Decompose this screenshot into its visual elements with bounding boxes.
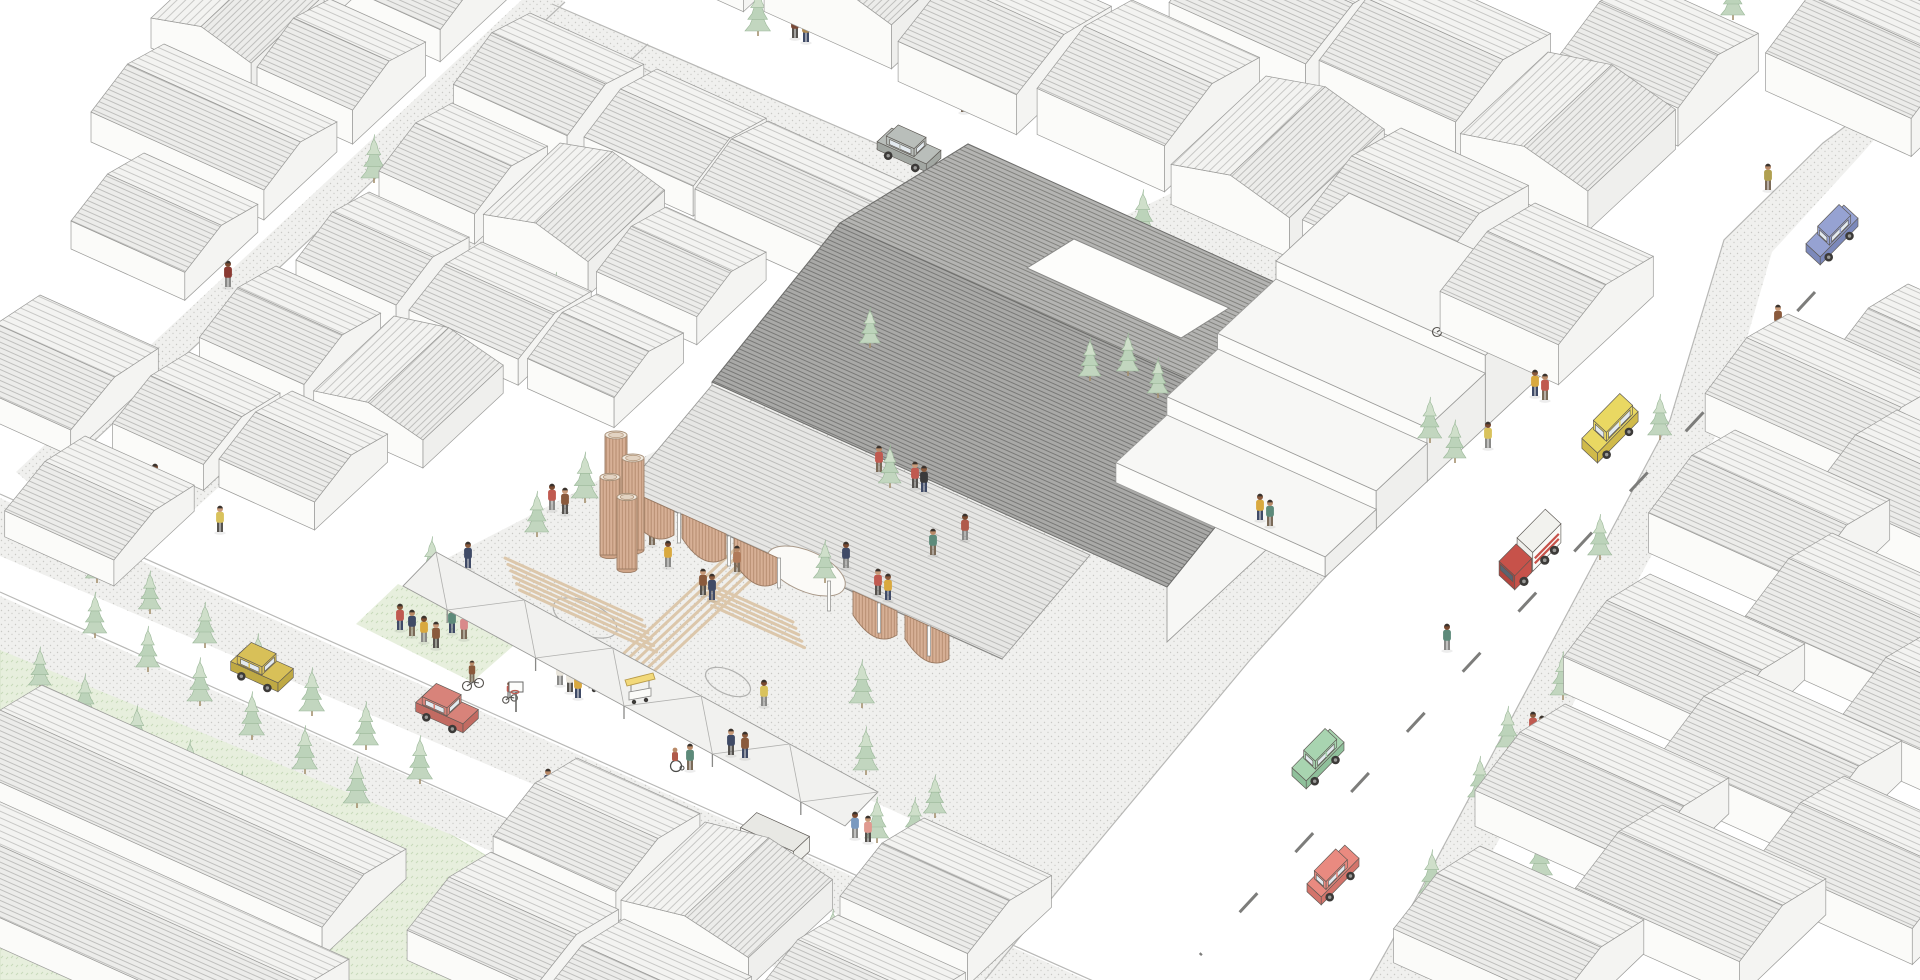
illustration-canvas	[0, 0, 1920, 980]
vehicle-car	[1806, 205, 1858, 265]
hall-silos	[600, 431, 644, 573]
tree	[136, 626, 160, 672]
tree	[571, 452, 598, 503]
person	[214, 506, 226, 535]
tree	[1721, 0, 1745, 20]
vehicle-car	[1307, 845, 1359, 905]
vehicle-car	[1292, 729, 1344, 789]
vehicle-truck	[1499, 509, 1561, 590]
tree	[407, 735, 433, 784]
person	[1441, 624, 1453, 653]
wheelchair	[671, 748, 685, 772]
silo	[617, 497, 637, 569]
site-plan-svg	[0, 0, 1920, 980]
tree	[1648, 394, 1672, 440]
person	[1762, 164, 1774, 193]
vehicle-bus	[1582, 394, 1638, 464]
person	[684, 744, 696, 773]
